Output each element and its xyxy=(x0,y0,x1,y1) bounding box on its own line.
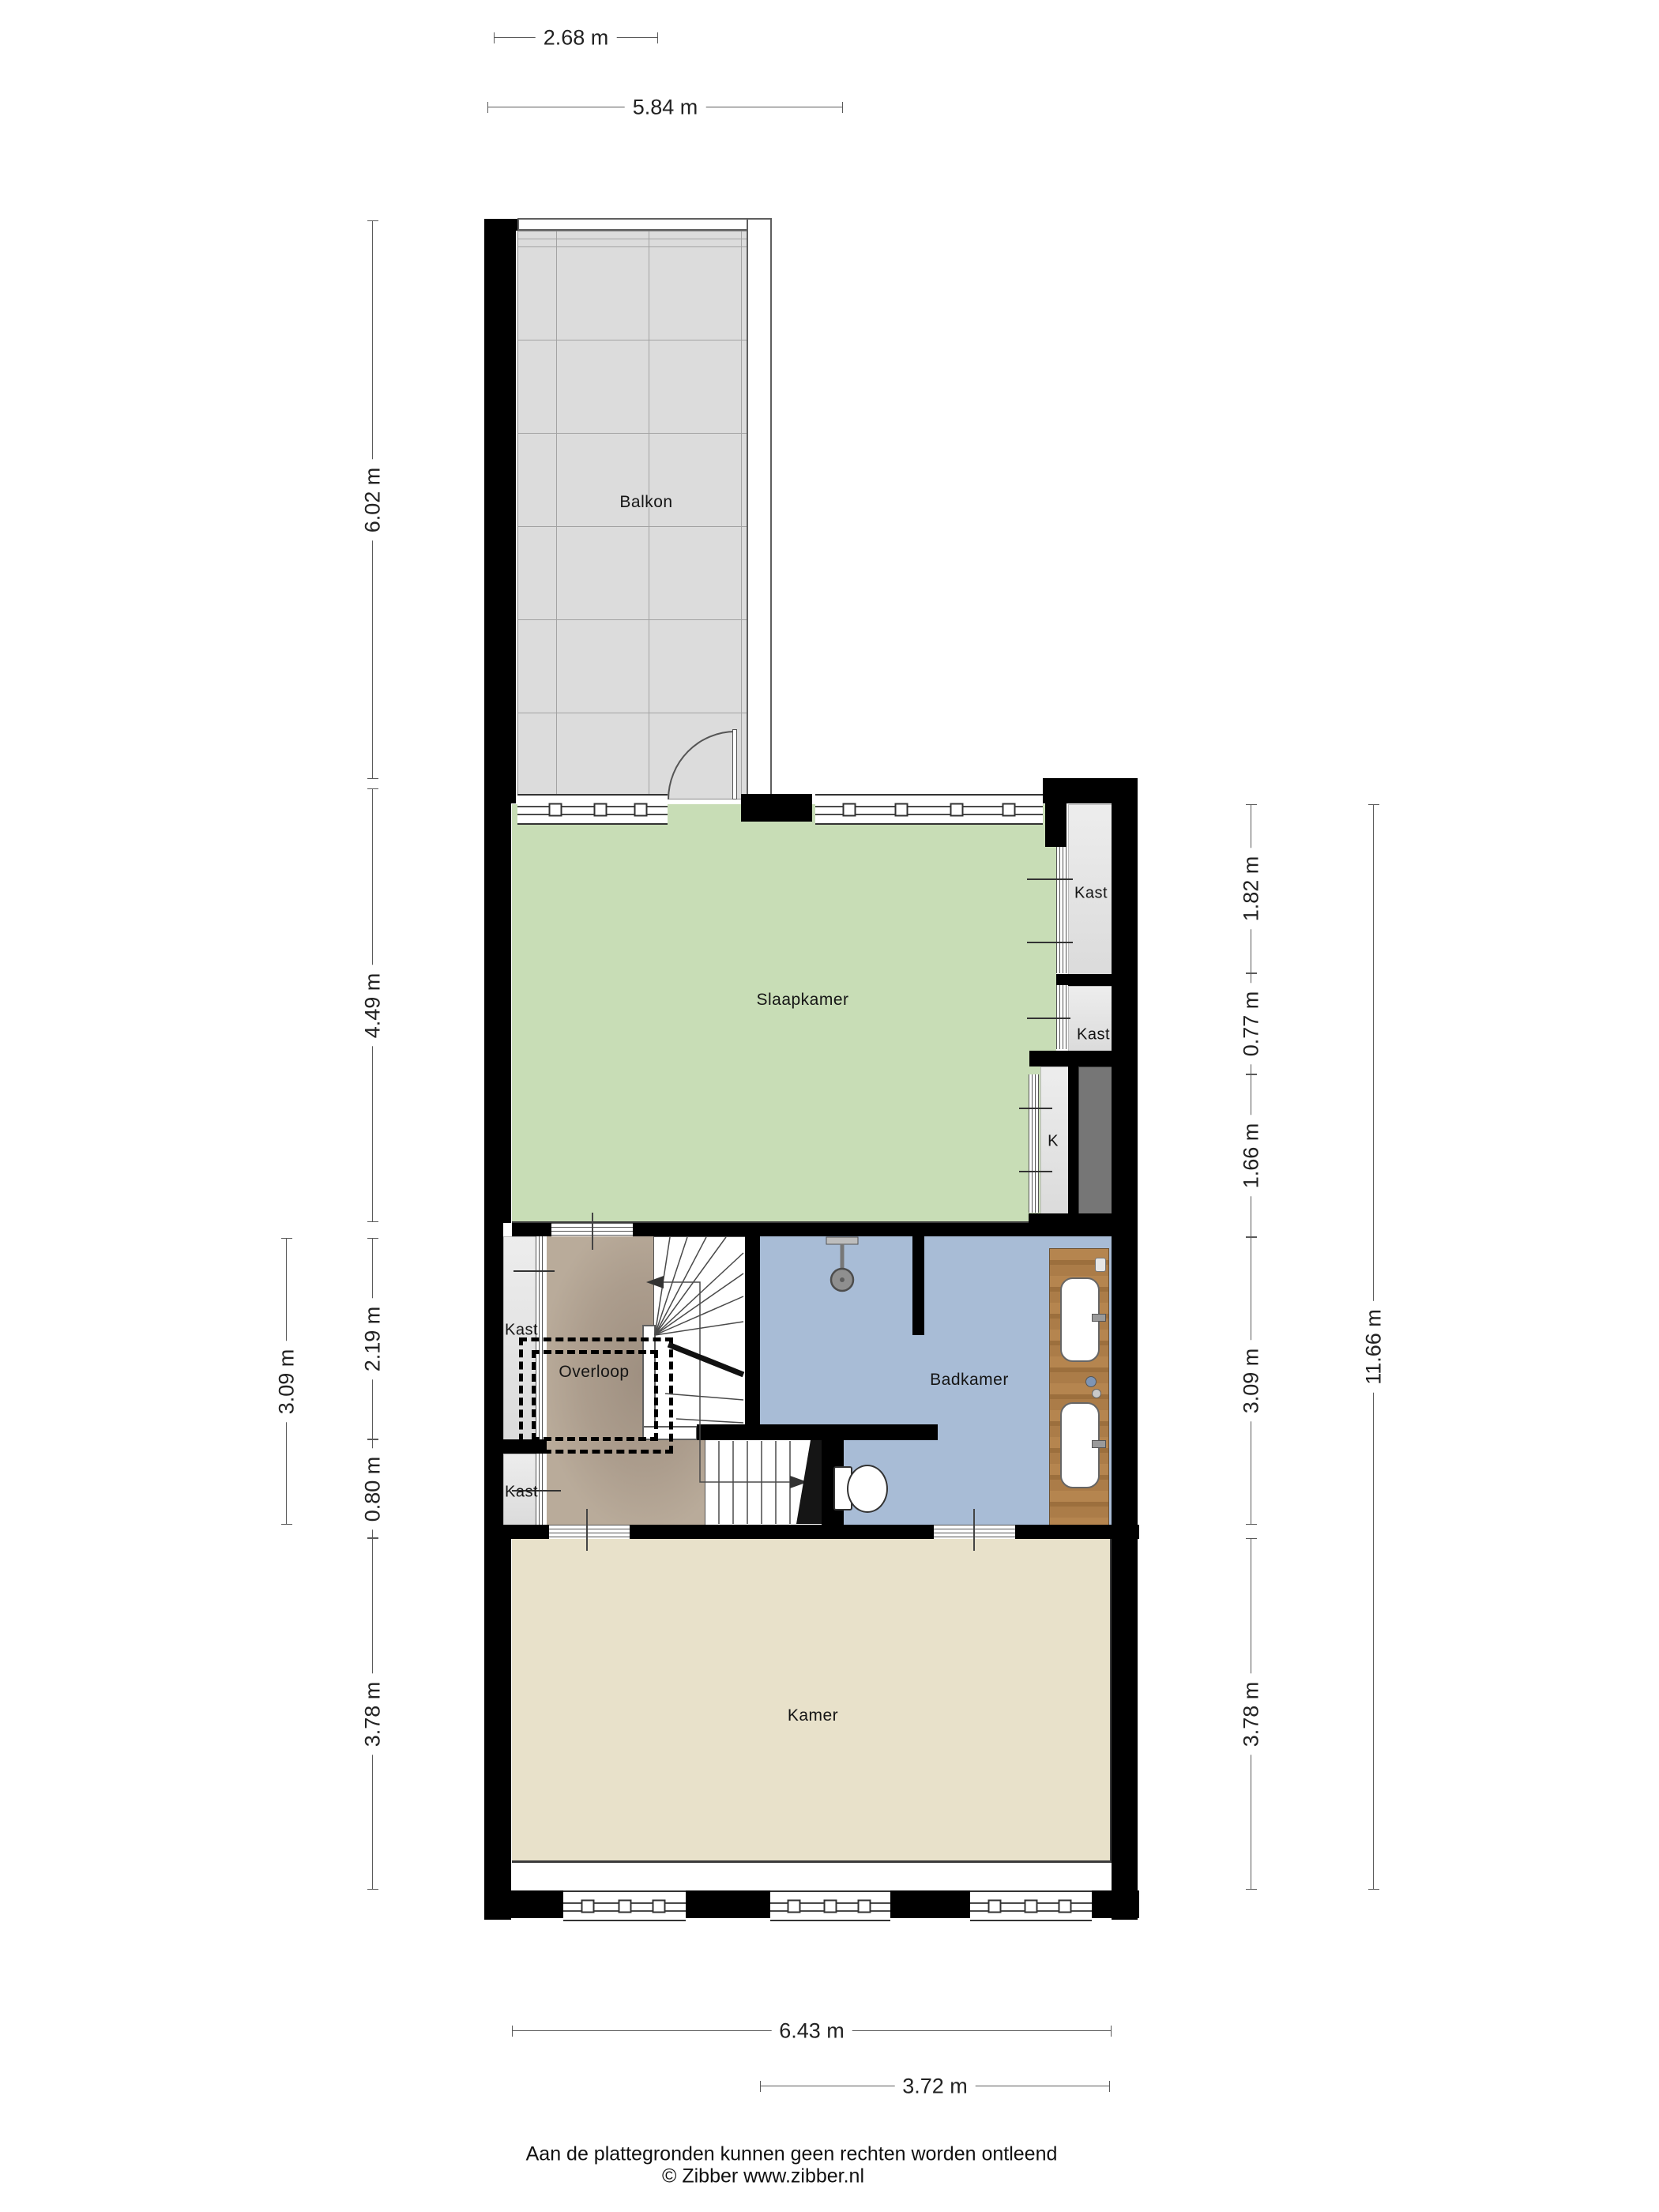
dim-right-totaal: 11.66 m xyxy=(1373,804,1374,1890)
stairs-and-shower-graphics xyxy=(0,0,1659,2212)
room-label-kast-right-2: Kast xyxy=(1077,1026,1110,1044)
dim-top-balkon: 2.68 m xyxy=(494,37,658,38)
dim-bottom-kamer: 3.72 m xyxy=(760,2086,1110,2086)
room-label-badkamer: Badkamer xyxy=(930,1371,1009,1390)
room-label-balkon: Balkon xyxy=(619,493,672,512)
dim-right-kamer: 3.78 m xyxy=(1251,1538,1251,1890)
dim-left-buiten: 3.09 m xyxy=(286,1238,287,1525)
dim-left-balkon: 6.02 m xyxy=(372,220,373,779)
dim-right-kast-boven: 1.82 m xyxy=(1251,804,1251,973)
dim-bottom-breedte: 6.43 m xyxy=(512,2030,1112,2031)
shower-icon xyxy=(826,1237,858,1291)
dim-left-slaapkamer: 4.49 m xyxy=(372,788,373,1222)
room-label-k: K xyxy=(1048,1133,1059,1151)
dim-top-breedte: 5.84 m xyxy=(487,107,843,107)
footer-copyright: © Zibber www.zibber.nl xyxy=(662,2165,864,2188)
dim-left-overloop: 2.19 m xyxy=(372,1238,373,1439)
dim-right-badkamer: 3.09 m xyxy=(1251,1237,1251,1525)
dim-right-kast-midden: 0.77 m xyxy=(1251,973,1251,1074)
room-label-kast-left-2: Kast xyxy=(505,1484,538,1502)
room-label-overloop: Overloop xyxy=(559,1363,629,1382)
room-label-kast-left-1: Kast xyxy=(505,1322,538,1340)
room-label-kast-right-1: Kast xyxy=(1074,885,1108,903)
footer-disclaimer: Aan de plattegronden kunnen geen rechten… xyxy=(526,2143,1058,2166)
dim-right-koof: 1.66 m xyxy=(1251,1074,1251,1237)
floorplan-page: { "rooms": { "balkon": "Balkon", "slaapk… xyxy=(0,0,1659,2212)
dim-left-kamer: 3.78 m xyxy=(372,1538,373,1890)
room-label-slaapkamer: Slaapkamer xyxy=(756,991,848,1010)
dim-left-kast: 0.80 m xyxy=(372,1439,373,1538)
room-label-kamer: Kamer xyxy=(788,1706,838,1725)
